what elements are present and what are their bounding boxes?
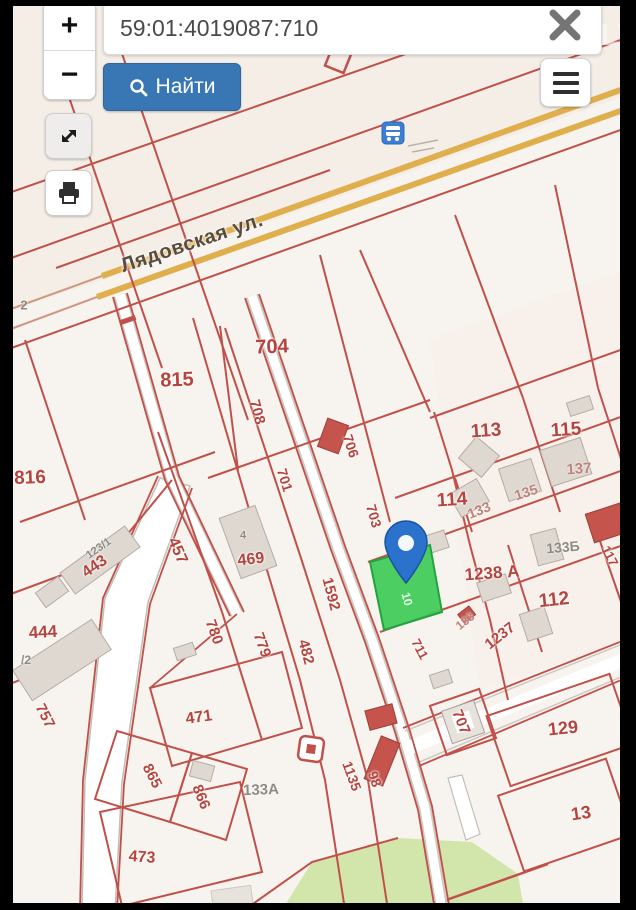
- screen-bezel-bottom: [0, 903, 636, 910]
- zoom-control: + −: [43, 1, 96, 100]
- park-area: [250, 838, 548, 910]
- search-input[interactable]: [103, 2, 602, 55]
- menu-icon: [553, 72, 579, 76]
- close-button[interactable]: [542, 2, 588, 48]
- cadastral-map-app: Лядовская ул.704815816708706701703113115…: [0, 0, 636, 910]
- find-button-label: Найти: [156, 75, 216, 99]
- map-canvas[interactable]: [0, 0, 636, 910]
- expand-icon: [54, 121, 84, 151]
- zoom-in-button[interactable]: +: [44, 2, 95, 50]
- print-button[interactable]: [45, 170, 92, 216]
- screen-bezel-top: [0, 0, 636, 6]
- search-icon: [129, 78, 148, 97]
- close-icon: [545, 5, 585, 45]
- find-button[interactable]: Найти: [103, 63, 241, 111]
- screen-bezel-right: [620, 0, 636, 910]
- print-icon: [55, 179, 83, 207]
- menu-button[interactable]: [540, 58, 591, 107]
- screen-bezel-left: [0, 0, 13, 910]
- fullscreen-button[interactable]: [45, 113, 92, 159]
- well-symbol-icon: [297, 735, 324, 762]
- zoom-out-button[interactable]: −: [44, 51, 95, 99]
